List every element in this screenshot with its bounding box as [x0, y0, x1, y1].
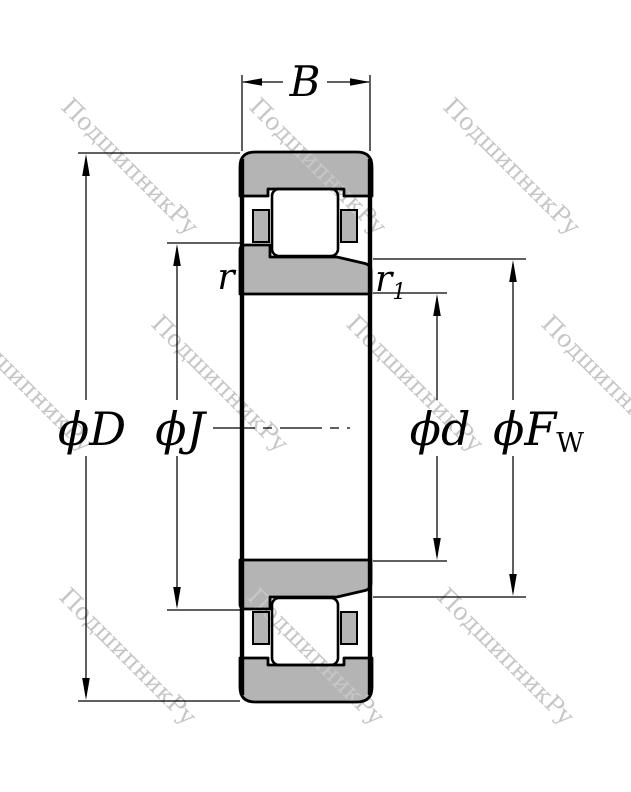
watermark-text: ПодшипникРу	[56, 92, 204, 240]
label-raceway-diameter: ϕFW	[493, 402, 584, 459]
label-bore-diameter: ϕd	[410, 402, 471, 456]
arrowhead-down	[82, 678, 90, 700]
watermark-text: ПодшипникРу	[438, 92, 586, 240]
roller-top-fill	[272, 189, 338, 256]
watermark-text: ПодшипникРу	[432, 582, 580, 730]
label-rib-diameter: ϕJ	[155, 402, 207, 456]
bearing-drawing: ПодшипникРу ПодшипникРу ПодшипникРу Подш…	[0, 0, 631, 792]
bearing-drawing-canvas: ПодшипникРу ПодшипникРу ПодшипникРу Подш…	[0, 0, 631, 792]
arrowhead-down	[509, 574, 517, 596]
cage-bar-fill	[253, 210, 269, 242]
label-inner-chamfer-r1: r1	[375, 259, 406, 305]
arrowhead-right	[350, 78, 370, 86]
label-width-B: B	[289, 57, 321, 106]
label-outer-chamfer-r: r	[217, 257, 236, 298]
arrowhead-down	[173, 587, 181, 609]
arrowhead-up	[173, 244, 181, 266]
arrowhead-up	[82, 154, 90, 176]
label-outer-diameter: ϕD	[58, 402, 126, 456]
arrowhead-up	[509, 260, 517, 282]
arrowhead-left	[242, 78, 262, 86]
watermark-text: ПодшипникРу	[54, 582, 202, 730]
arrowhead-up	[433, 294, 441, 316]
cage-bar-fill	[341, 612, 357, 644]
arrowhead-down	[433, 538, 441, 560]
